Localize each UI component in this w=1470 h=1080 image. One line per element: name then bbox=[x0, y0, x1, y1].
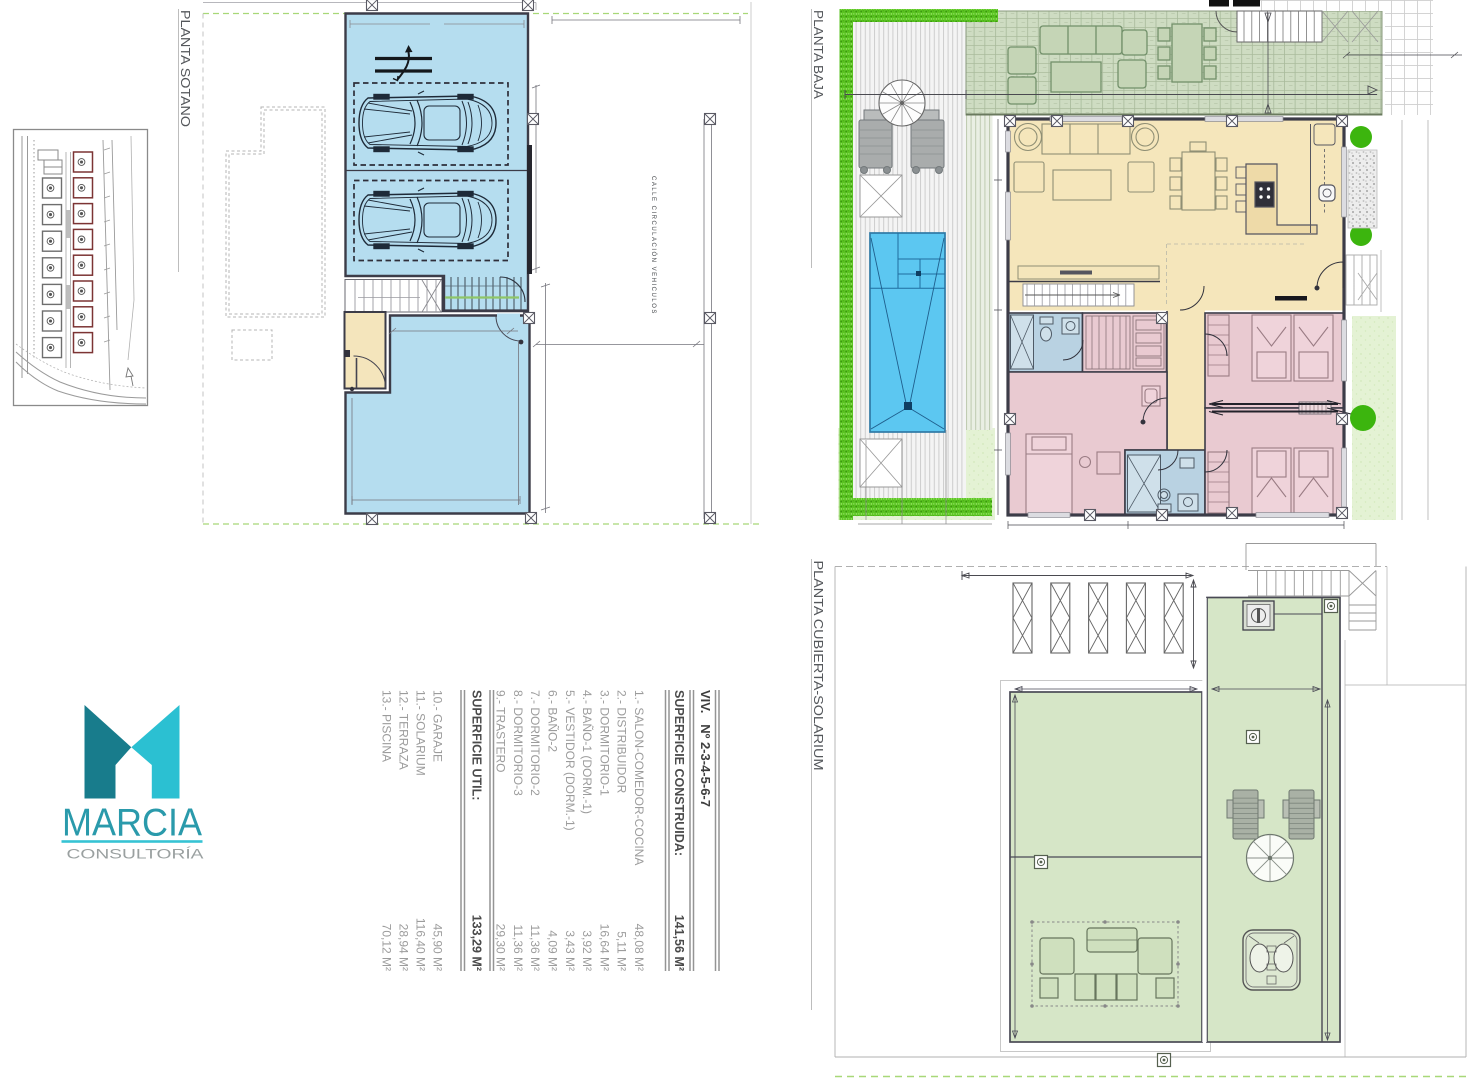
svg-text:PLANTA CUBIERTA-SOLARIUM: PLANTA CUBIERTA-SOLARIUM bbox=[811, 561, 825, 771]
svg-text:3,92 M²: 3,92 M² bbox=[580, 930, 594, 971]
svg-text:5.- VESTIDOR (DORM.-1): 5.- VESTIDOR (DORM.-1) bbox=[563, 690, 577, 831]
svg-text:29,30 M²: 29,30 M² bbox=[494, 924, 508, 971]
svg-text:16,64 M²: 16,64 M² bbox=[597, 924, 611, 971]
svg-text:VIV. Nº 2-3-4-5-6-7: VIV. Nº 2-3-4-5-6-7 bbox=[698, 690, 713, 807]
svg-text:11,36 M²: 11,36 M² bbox=[528, 925, 542, 971]
svg-text:11.- SOLARIUM: 11.- SOLARIUM bbox=[414, 690, 428, 776]
svg-text:CALLE CIRCULACIÓN VEHICULOS: CALLE CIRCULACIÓN VEHICULOS bbox=[650, 176, 657, 315]
svg-text:PLANTA SOTANO: PLANTA SOTANO bbox=[178, 10, 192, 127]
svg-text:133,29 M²: 133,29 M² bbox=[470, 915, 484, 971]
svg-text:5,11 M²: 5,11 M² bbox=[615, 931, 629, 971]
svg-text:9.- TRASTERO: 9.- TRASTERO bbox=[494, 690, 508, 772]
svg-text:4,09 M²: 4,09 M² bbox=[546, 930, 560, 971]
svg-text:116,40 M²: 116,40 M² bbox=[414, 918, 428, 971]
svg-text:2.- DISTRIBUIDOR: 2.- DISTRIBUIDOR bbox=[615, 690, 629, 794]
svg-text:CONSULTORÍA: CONSULTORÍA bbox=[67, 847, 204, 862]
svg-text:3,43 M²: 3,43 M² bbox=[563, 930, 577, 971]
svg-text:MARCIA: MARCIA bbox=[62, 802, 202, 845]
svg-text:12.- TERRAZA: 12.- TERRAZA bbox=[397, 690, 411, 770]
svg-text:PLANTA BAJA: PLANTA BAJA bbox=[811, 10, 825, 100]
svg-text:13.- PISCINA: 13.- PISCINA bbox=[380, 690, 394, 762]
svg-text:70,12 M²: 70,12 M² bbox=[380, 924, 394, 971]
svg-text:6.- BAÑO-2: 6.- BAÑO-2 bbox=[546, 690, 560, 752]
svg-text:1.- SALON-COMEDOR-COCINA: 1.- SALON-COMEDOR-COCINA bbox=[632, 690, 646, 865]
svg-text:141,56 M²: 141,56 M² bbox=[672, 915, 686, 971]
svg-text:3.- DORMITORIO-1: 3.- DORMITORIO-1 bbox=[597, 690, 611, 796]
svg-text:4.- BAÑO-1 (DORM.-1): 4.- BAÑO-1 (DORM.-1) bbox=[580, 690, 594, 814]
svg-text:8.- DORMITORIO-3: 8.- DORMITORIO-3 bbox=[511, 690, 525, 796]
svg-text:28,94 M²: 28,94 M² bbox=[397, 924, 411, 971]
svg-text:45,90 M²: 45,90 M² bbox=[431, 924, 445, 971]
svg-text:10.- GARAJE: 10.- GARAJE bbox=[431, 690, 445, 762]
svg-text:SUPERFICIE UTIL:: SUPERFICIE UTIL: bbox=[470, 690, 484, 800]
svg-text:48,08 M²: 48,08 M² bbox=[632, 924, 646, 971]
svg-text:SUPERFICIE CONSTRUIDA:: SUPERFICIE CONSTRUIDA: bbox=[672, 690, 686, 856]
svg-text:7.- DORMITORIO-2: 7.- DORMITORIO-2 bbox=[528, 690, 542, 796]
svg-text:11,36 M²: 11,36 M² bbox=[511, 925, 525, 971]
